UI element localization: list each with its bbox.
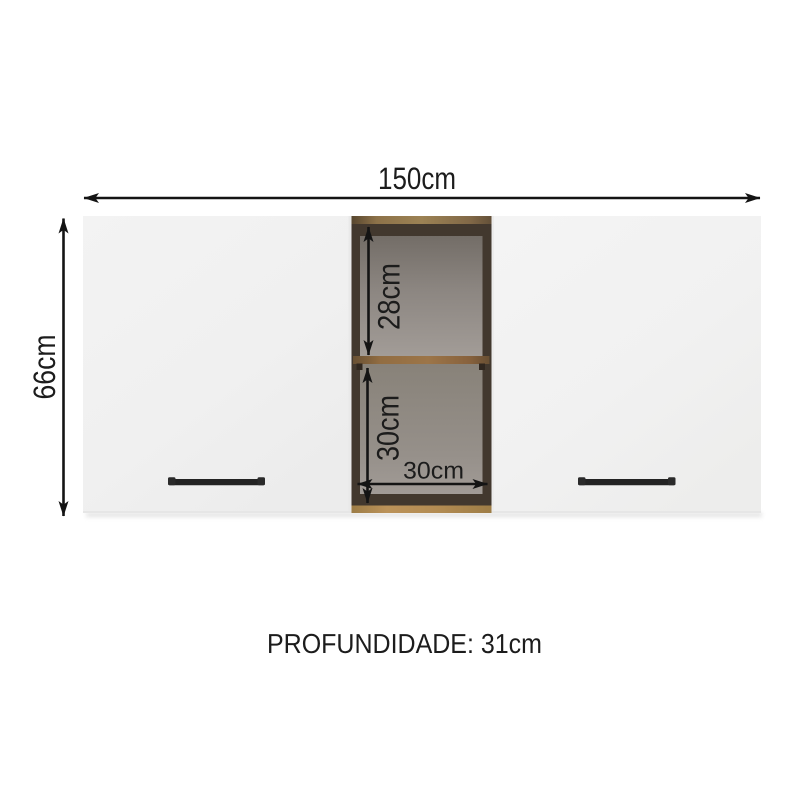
svg-text:PROFUNDIDADE: 31cm: PROFUNDIDADE: 31cm (267, 628, 542, 659)
svg-text:30cm: 30cm (403, 458, 464, 485)
svg-text:66cm: 66cm (27, 335, 62, 400)
svg-text:28cm: 28cm (372, 263, 407, 330)
svg-text:150cm: 150cm (378, 161, 456, 196)
svg-text:30cm: 30cm (371, 395, 406, 461)
